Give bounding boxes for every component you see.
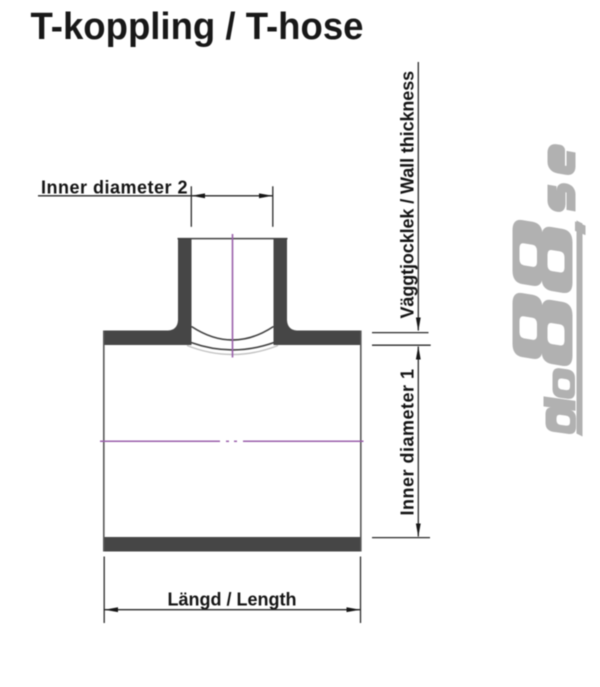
svg-text:Längd / Length: Längd / Length: [168, 590, 297, 610]
svg-text:T-koppling / T-hose: T-koppling / T-hose: [31, 5, 364, 48]
svg-text:Inner diameter 2: Inner diameter 2: [41, 178, 188, 198]
svg-text:Väggtjocklek / Wall thickness: Väggtjocklek / Wall thickness: [398, 71, 418, 319]
svg-text:Inner diameter 1: Inner diameter 1: [398, 368, 418, 515]
